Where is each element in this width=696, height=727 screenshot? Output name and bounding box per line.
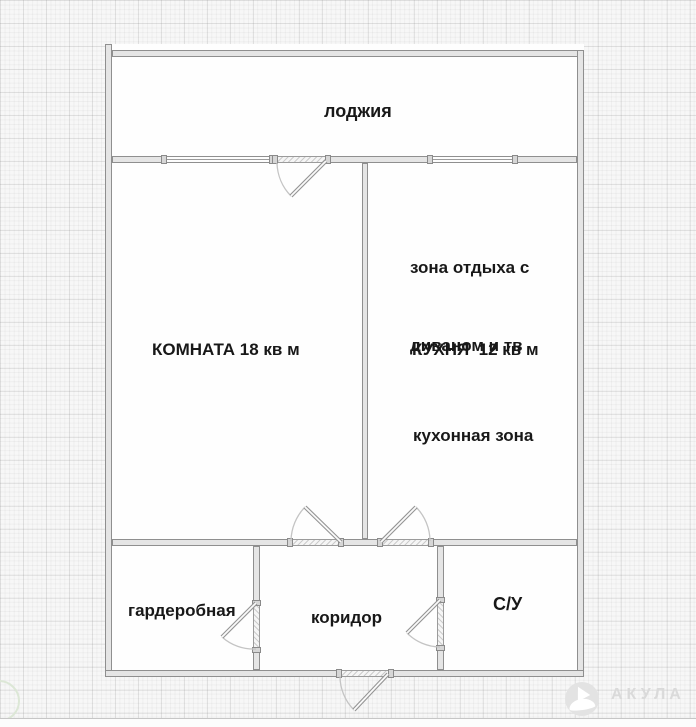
door-jamb (428, 538, 434, 547)
watermark-circle-partial (0, 680, 20, 722)
window-marker (427, 155, 433, 164)
wall-right (577, 50, 584, 677)
door-jamb (272, 155, 278, 164)
wall-mid-horizontal (112, 539, 577, 546)
door-opening-balcony (275, 156, 328, 163)
door-opening-kitchen (380, 539, 431, 546)
door-jamb (388, 669, 394, 678)
label-corridor: коридор (311, 608, 382, 628)
door-opening-living (290, 539, 341, 546)
entrance-door (340, 674, 388, 710)
shark-body-icon (568, 697, 595, 712)
label-kitchen-lounge-zone: зона отдыха с диваном и тв (410, 203, 529, 411)
window-marker (161, 155, 167, 164)
door-jamb (377, 538, 383, 547)
watermark-brand: АКУЛА (611, 686, 685, 704)
window-kitchen-loggia (433, 156, 513, 163)
door-jamb (252, 600, 261, 606)
window-living-loggia (167, 156, 270, 163)
watermark-logo (565, 682, 599, 716)
label-living: КОМНАТА 18 кв м (152, 340, 300, 360)
wall-left (105, 44, 112, 677)
door-opening-bathroom (437, 600, 444, 648)
floor-plan: лоджия КОМНАТА 18 кв м зона отдыха с див… (0, 0, 696, 727)
label-kitchen-cooking-zone: кухонная зона (413, 426, 533, 446)
door-jamb (287, 538, 293, 547)
lounge-line-1: зона отдыха с (410, 255, 529, 281)
window-marker (512, 155, 518, 164)
door-jamb (436, 645, 445, 651)
door-opening-wardrobe (253, 603, 260, 650)
door-jamb (336, 669, 342, 678)
wall-room-kitchen (362, 163, 368, 539)
door-jamb (252, 647, 261, 653)
paper-bottom-edge (0, 718, 696, 727)
label-kitchen: КУХНЯ 12 кв м (412, 340, 539, 360)
door-jamb (325, 155, 331, 164)
label-loggia: лоджия (324, 101, 392, 121)
label-wardrobe: гардеробная (128, 601, 236, 621)
label-bathroom: С/У (493, 594, 522, 614)
wall-top (112, 50, 584, 57)
door-jamb (436, 597, 445, 603)
door-opening-entrance (339, 670, 391, 677)
door-jamb (338, 538, 344, 547)
